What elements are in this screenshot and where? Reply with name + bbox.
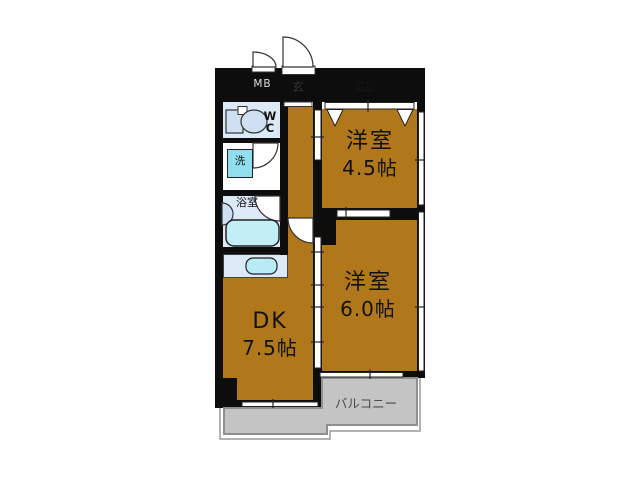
kitchen-sink: [246, 258, 277, 274]
closet-door-track: [325, 103, 414, 110]
dk-door-arc: [288, 218, 313, 243]
closet-fold-door-triangle-left: [327, 110, 343, 127]
floor-plan: 洋室 4.5帖 洋室 6.0帖 DK 7.5帖 バルコニー MB 玄 CL W …: [0, 0, 640, 480]
wc-label: W C: [262, 110, 278, 134]
bathroom-label: 浴室: [224, 197, 270, 209]
room-divider-opening: [337, 210, 390, 217]
window-room60-bottom: [320, 373, 403, 378]
entrance-step: [284, 102, 312, 107]
room45-size-label: 4.5帖: [320, 157, 420, 179]
entrance-door-arc: [283, 37, 313, 67]
room45-name-label: 洋室: [320, 130, 420, 154]
meter-box-door-arc: [253, 52, 276, 67]
entrance-label: 玄: [283, 81, 313, 94]
meter-box-label: MB: [248, 79, 277, 91]
closet-label: CL: [322, 80, 408, 94]
dk-name-label: DK: [220, 310, 320, 334]
laundry-label: 洗: [227, 156, 253, 168]
room60-size-label: 6.0帖: [318, 298, 418, 320]
room60-name-label: 洋室: [318, 271, 418, 295]
balcony-label: バルコニー: [316, 397, 416, 411]
bathtub: [226, 220, 279, 246]
laundry-door-arc: [253, 143, 278, 168]
closet-fold-door-triangle-right: [397, 110, 413, 127]
dk-size-label: 7.5帖: [220, 337, 320, 359]
window-room60-right: [419, 212, 425, 371]
window-dk-bottom: [242, 402, 318, 407]
wc-label-line2: C: [266, 121, 274, 135]
